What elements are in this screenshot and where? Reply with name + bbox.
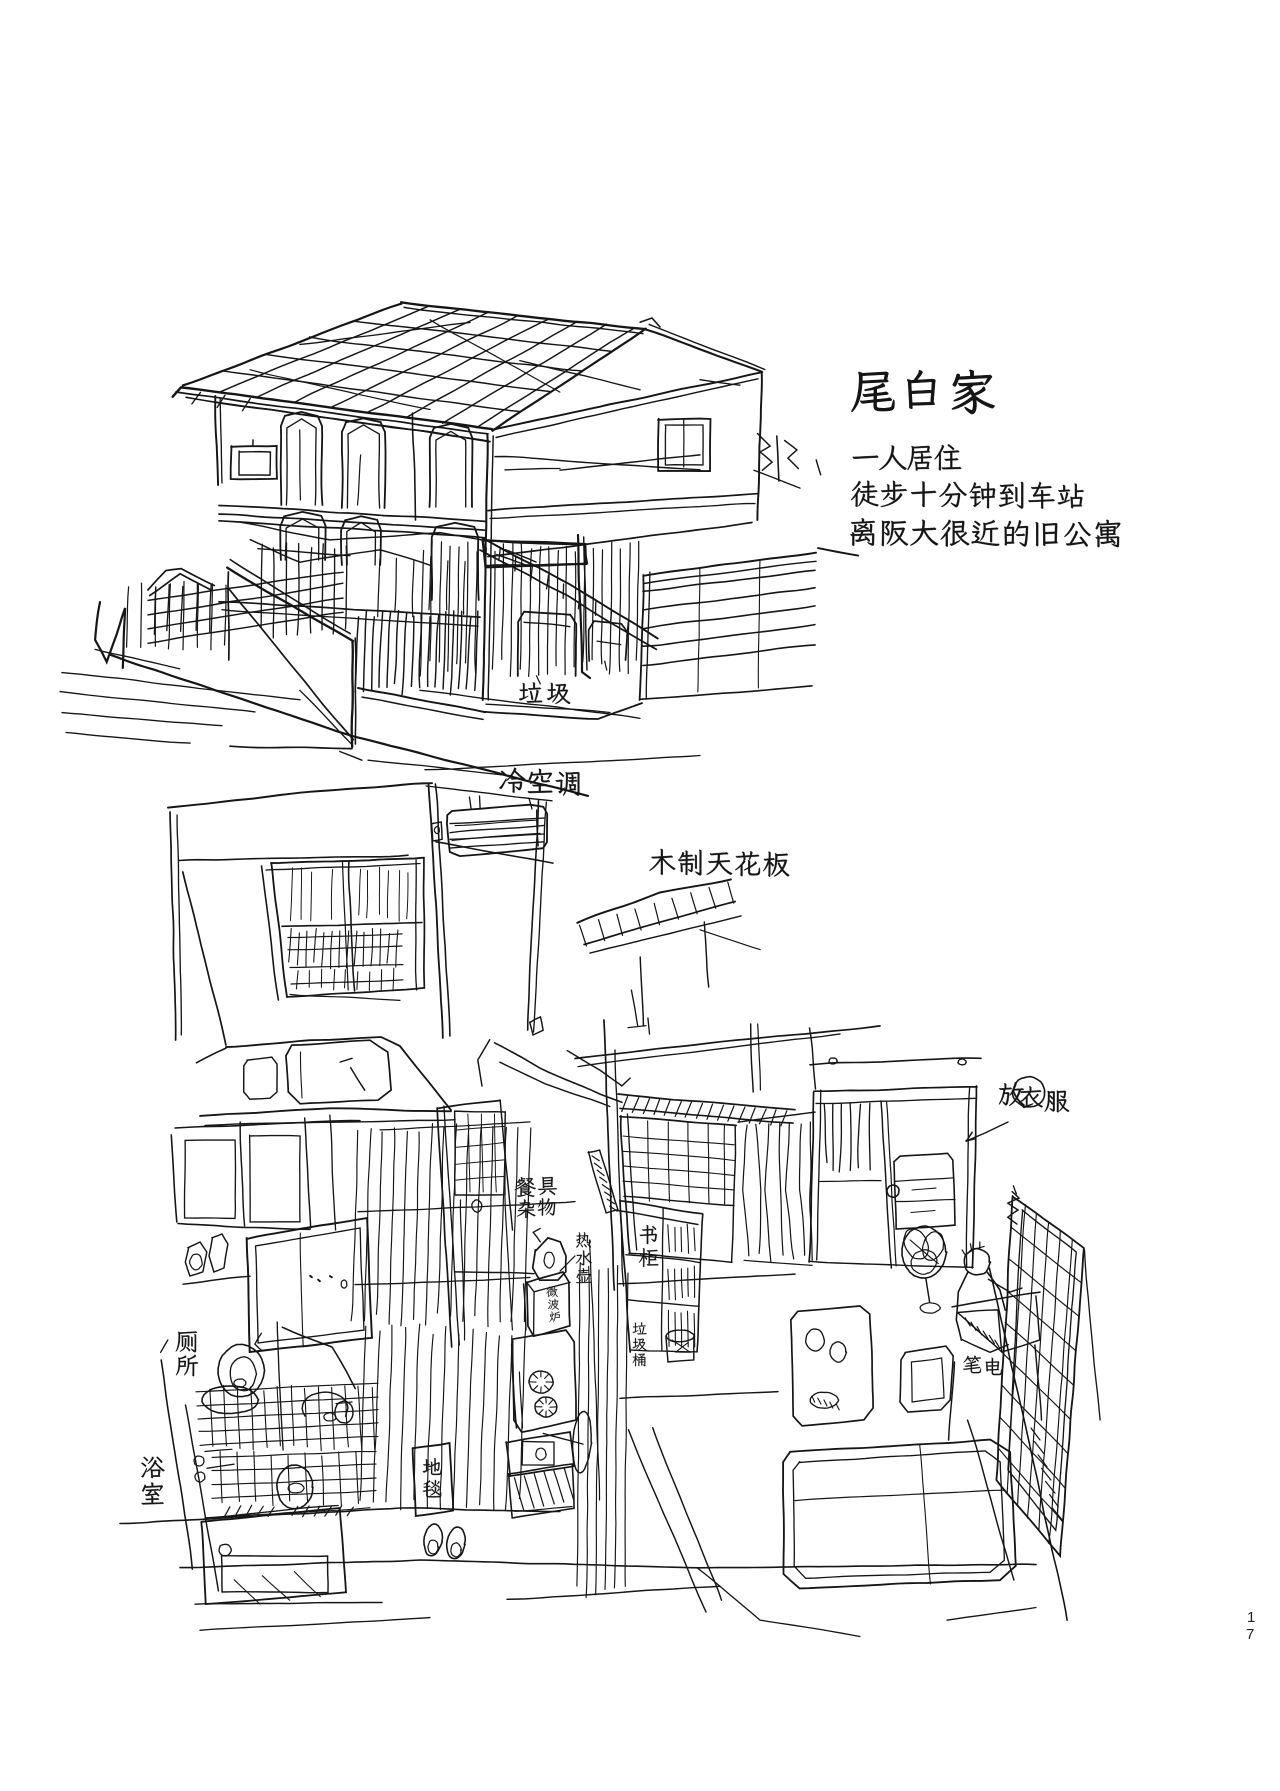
svg-text:7: 7 <box>1246 1626 1254 1643</box>
svg-text:1: 1 <box>1247 1609 1255 1626</box>
